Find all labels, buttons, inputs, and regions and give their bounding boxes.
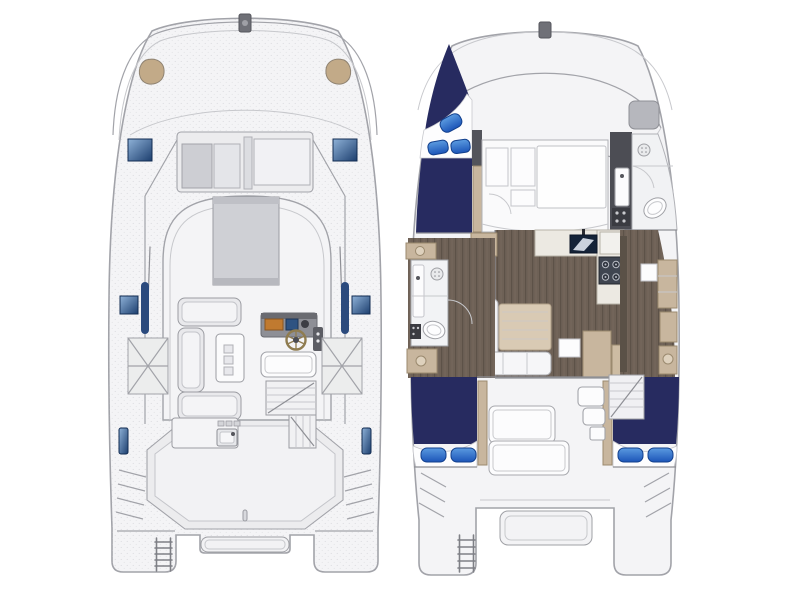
hull-window-port <box>119 428 128 454</box>
cockpit-stairs <box>609 375 644 419</box>
aft-cabin-port <box>411 377 487 467</box>
aft-pillow-stbd-1 <box>618 448 643 462</box>
master-mattress <box>537 146 606 208</box>
sidedeck-hatch-starboard <box>352 296 370 314</box>
foredeck-hatch-starboard <box>333 139 357 161</box>
aft-pillow-port-1 <box>421 448 446 462</box>
helm-display-orange <box>265 319 283 330</box>
anchor-fitting-2 <box>539 22 551 38</box>
head-sink-vanity <box>615 168 629 206</box>
dinette-table <box>499 304 551 350</box>
cockpit-bench-1 <box>489 406 555 443</box>
deck-plan-view <box>109 14 382 572</box>
helm-display-blue <box>286 319 298 330</box>
shower-head-icon <box>638 144 650 156</box>
yacht-floorplan-figure <box>0 0 800 600</box>
swim-step <box>201 537 289 552</box>
flybridge-wetbar <box>172 418 240 448</box>
helm-bench-seat <box>261 352 316 377</box>
interior-plan-view <box>406 22 679 575</box>
flybridge <box>163 196 331 448</box>
bow-seat-pad <box>629 101 659 129</box>
port-hull-midship <box>406 238 495 378</box>
coachroof-window-starboard <box>341 282 349 334</box>
flybridge-table <box>216 334 244 382</box>
shower-head-icon-2 <box>431 268 443 280</box>
cockpit-bench-2 <box>489 441 569 475</box>
galley-cabinet-aft <box>583 331 611 377</box>
forward-berth-center <box>482 140 608 232</box>
aft-pillow-stbd-2 <box>648 448 673 462</box>
coachroof-window-port <box>141 282 149 334</box>
stbd-cabinet-fwd <box>658 260 677 308</box>
salon <box>471 229 633 378</box>
port-head-sink <box>413 265 424 317</box>
anchor-fitting <box>239 14 251 32</box>
stove <box>599 257 622 284</box>
aft-pillow-port-2 <box>451 448 476 462</box>
aft-bed-port <box>411 377 477 444</box>
hull-window-starboard <box>362 428 371 454</box>
foredeck-hatch-port <box>128 139 152 161</box>
hardtop-sunroof <box>213 197 279 285</box>
catamaran-floorplans <box>0 0 800 600</box>
aft-wardrobe-port <box>478 381 487 465</box>
wetbar-faucet <box>231 432 235 436</box>
sidedeck-hatch-port <box>120 296 138 314</box>
vberth-pillow-3 <box>450 139 471 155</box>
port-head <box>410 260 448 346</box>
